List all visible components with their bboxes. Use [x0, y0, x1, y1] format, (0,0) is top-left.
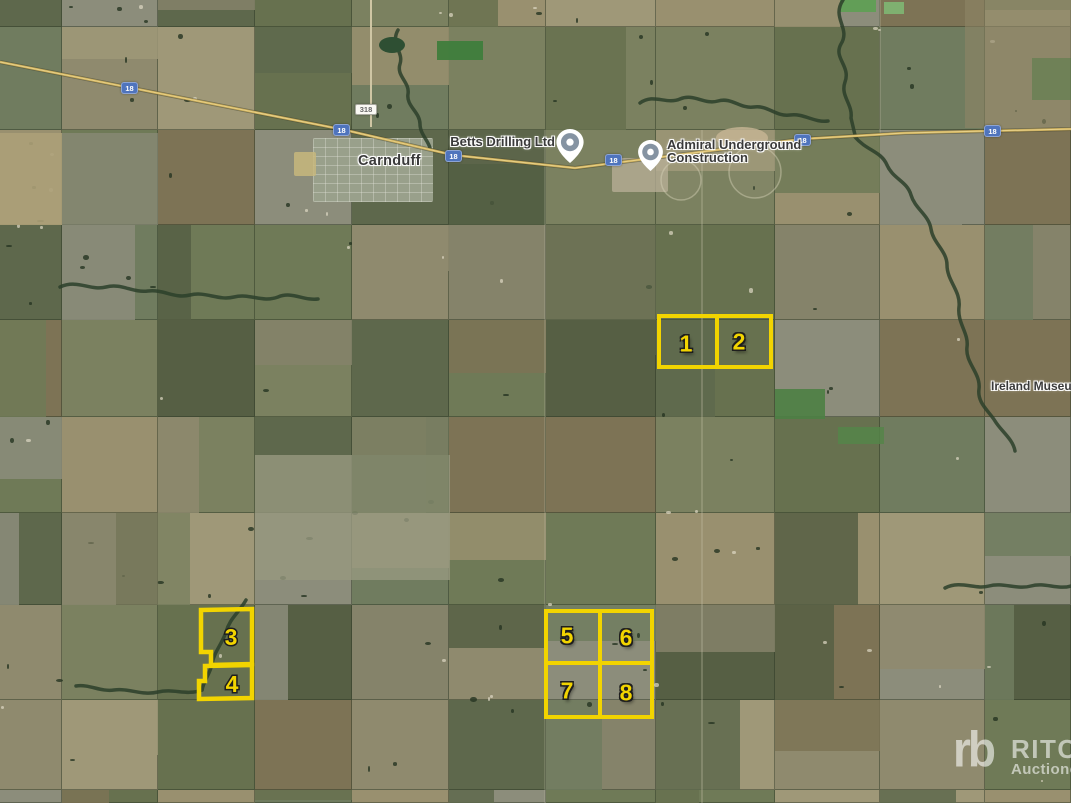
- town-label: Carnduff: [358, 153, 421, 169]
- pond: [379, 37, 405, 53]
- parcel-number-7: 7: [561, 680, 574, 703]
- poi-label-admiral-line2: Construction: [667, 152, 801, 165]
- map-pin-icon: [556, 129, 584, 163]
- highway-18-shield: 18: [121, 82, 138, 94]
- highway-18-shield: 18: [605, 154, 622, 166]
- parcel-divider: [548, 661, 650, 665]
- satellite-map: 18 18 18 18 18 18 318 Carnduff Betts Dri…: [0, 0, 1071, 803]
- ritchie-bros-watermark: rb RITCHIE Auctioneers: [953, 728, 1071, 798]
- rb-logo: rb: [953, 724, 993, 774]
- parcel-group-1-2: [657, 314, 773, 369]
- terrain-overlay: [0, 0, 1071, 803]
- poi-label-ireland-museum: Ireland Museum: [991, 380, 1071, 393]
- poi-label-admiral: Admiral Underground Construction: [667, 139, 801, 164]
- parcel-number-8: 8: [620, 682, 633, 705]
- parcel-number-5: 5: [561, 625, 574, 648]
- map-pin-icon: [638, 140, 663, 171]
- highway-18-shield: 18: [445, 150, 462, 162]
- parcel-number-6: 6: [620, 627, 633, 650]
- poi-label-betts: Betts Drilling Ltd: [450, 136, 555, 149]
- parcel-number-1: 1: [680, 333, 693, 356]
- highway-18-shield: 18: [984, 125, 1001, 137]
- highway-18-shield: 18: [333, 124, 350, 136]
- parcel-number-2: 2: [733, 331, 746, 354]
- parcel-divider: [715, 318, 719, 365]
- watermark-tagline: Auctioneers: [1011, 761, 1071, 778]
- highway-318-shield: 318: [355, 104, 377, 115]
